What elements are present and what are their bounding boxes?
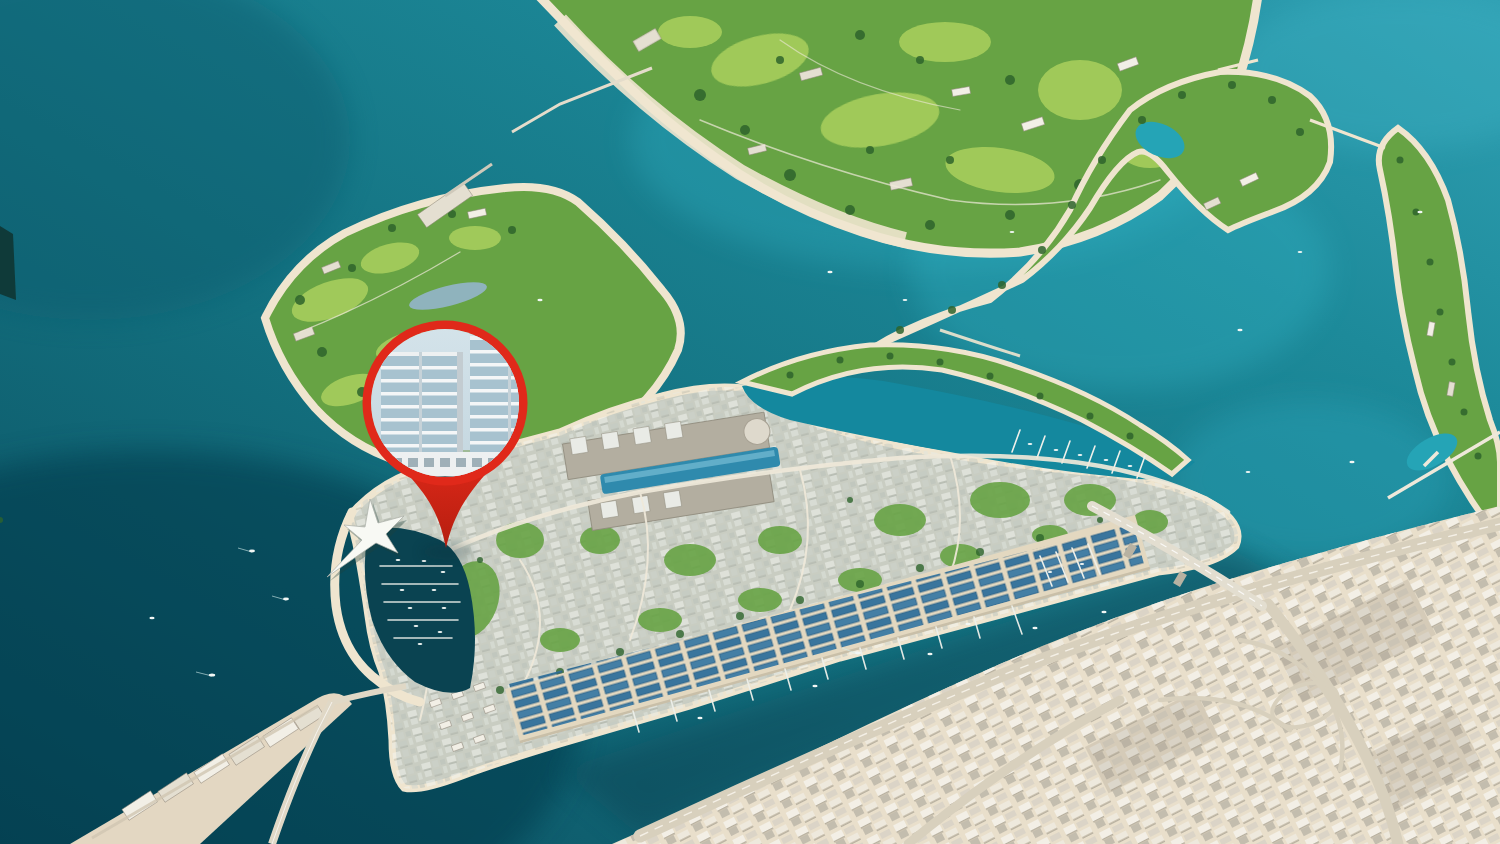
pin-shadow — [421, 544, 473, 560]
map-canvas — [0, 0, 1500, 844]
aerial-map — [0, 0, 1500, 844]
